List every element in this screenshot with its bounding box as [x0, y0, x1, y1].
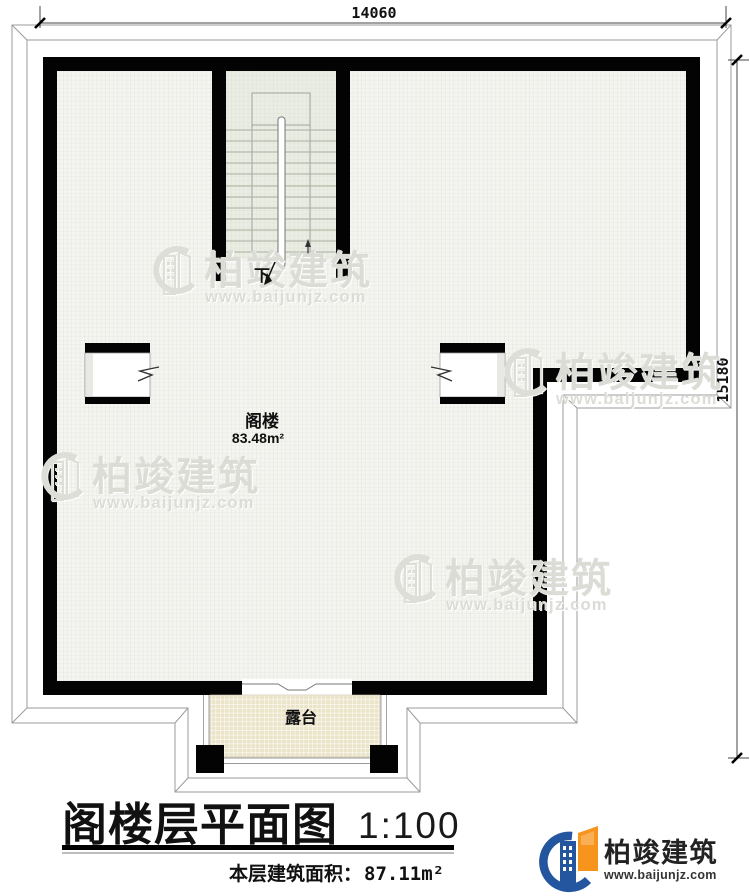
- watermark-brand: 柏竣建筑: [445, 557, 613, 601]
- dormer-window-right: [431, 343, 505, 404]
- logo-building-orange: [578, 826, 598, 871]
- watermark-url: www.baijunjz.com: [555, 390, 718, 408]
- watermark-brand: 柏竣建筑: [555, 351, 723, 395]
- watermark-brand: 柏竣建筑: [92, 455, 260, 499]
- watermark-url: www.baijunjz.com: [445, 596, 608, 614]
- logo-building-blue: [560, 841, 576, 884]
- brand-logo-icon: [543, 826, 598, 888]
- room-area-attic: 83.48m²: [232, 430, 284, 446]
- terrace-column-left: [196, 745, 224, 773]
- brand-name: 柏竣建筑: [604, 837, 718, 868]
- floor-area-line: 本层建筑面积：87.11m²: [229, 862, 444, 885]
- brand-url: www.baijunjz.com: [603, 868, 717, 882]
- room-label-attic: 阁楼: [245, 411, 279, 431]
- terrace: [196, 695, 398, 773]
- terrace-column-right: [370, 745, 398, 773]
- title-underline-shadow: [62, 852, 454, 854]
- watermark-url: www.baijunjz.com: [204, 288, 367, 306]
- watermark-url: www.baijunjz.com: [92, 494, 255, 512]
- dormer-window-left: [85, 343, 159, 404]
- staircase: [226, 71, 336, 267]
- brand-logo: 柏竣建筑 www.baijunjz.com: [543, 826, 718, 888]
- terrace-door-opening: [242, 679, 352, 696]
- stair-handrail: [278, 117, 285, 267]
- dimension-top-value: 14060: [351, 4, 396, 22]
- drawing-scale: 1:100: [358, 805, 461, 846]
- floor-plan-page: 14060 15180 柏竣建筑 www.baijunjz.com 柏竣建筑 w…: [0, 0, 750, 896]
- floor-plan-canvas: 14060 15180 柏竣建筑 www.baijunjz.com 柏竣建筑 w…: [0, 0, 750, 896]
- stairwell-wall-left: [212, 57, 226, 281]
- stairwell-wall-right: [336, 57, 350, 279]
- watermark-brand: 柏竣建筑: [204, 249, 372, 293]
- room-label-terrace: 露台: [285, 708, 317, 727]
- title-underline: [62, 845, 454, 850]
- drawing-title: 阁楼层平面图: [62, 799, 338, 850]
- title-block: 阁楼层平面图 1:100 本层建筑面积：87.11m²: [62, 799, 461, 885]
- floor-area-label: 本层建筑面积：: [229, 862, 362, 885]
- floor-area-value: 87.11m²: [364, 863, 444, 885]
